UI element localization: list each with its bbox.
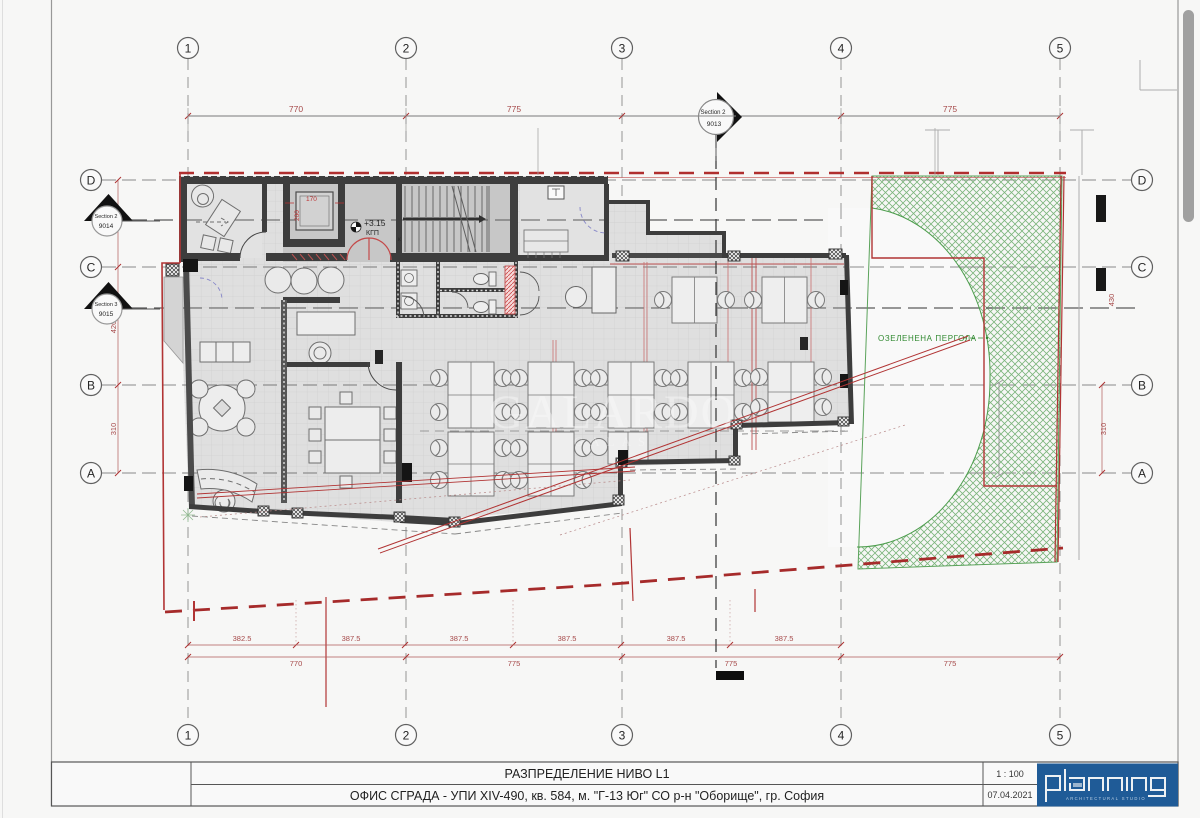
svg-text:ARCHITECTURAL STUDIO: ARCHITECTURAL STUDIO bbox=[1066, 796, 1146, 801]
svg-text:5: 5 bbox=[1057, 729, 1064, 743]
svg-text:Section 2: Section 2 bbox=[95, 214, 118, 220]
svg-text:310: 310 bbox=[109, 423, 118, 436]
svg-text:A: A bbox=[87, 467, 95, 481]
svg-text:РАЗПРЕДЕЛЕНИЕ НИВО L1: РАЗПРЕДЕЛЕНИЕ НИВО L1 bbox=[504, 767, 669, 781]
svg-text:C: C bbox=[87, 261, 96, 275]
svg-text:B: B bbox=[1138, 379, 1146, 393]
svg-text:ОФИС СГРАДА - УПИ XIV-490, кв.: ОФИС СГРАДА - УПИ XIV-490, кв. 584, м. "… bbox=[350, 789, 824, 803]
svg-text:1 : 100: 1 : 100 bbox=[996, 769, 1024, 779]
svg-text:Section 2: Section 2 bbox=[700, 110, 726, 116]
svg-text:4: 4 bbox=[838, 729, 845, 743]
svg-text:5: 5 bbox=[1057, 42, 1064, 56]
svg-text:170: 170 bbox=[306, 196, 317, 203]
svg-text:382.5: 382.5 bbox=[233, 634, 252, 643]
svg-text:770: 770 bbox=[289, 104, 303, 114]
svg-text:775: 775 bbox=[507, 104, 521, 114]
svg-text:КГП: КГП bbox=[366, 230, 379, 237]
svg-text:B: B bbox=[87, 379, 95, 393]
svg-text:2: 2 bbox=[403, 729, 410, 743]
svg-text:775: 775 bbox=[725, 659, 738, 668]
svg-text:9015: 9015 bbox=[99, 311, 114, 318]
svg-text:775: 775 bbox=[944, 659, 957, 668]
svg-text:310: 310 bbox=[1099, 423, 1108, 436]
svg-text:387.5: 387.5 bbox=[342, 634, 361, 643]
svg-text:775: 775 bbox=[508, 659, 521, 668]
svg-text:A: A bbox=[1138, 467, 1146, 481]
svg-text:1: 1 bbox=[185, 42, 192, 56]
svg-text:9014: 9014 bbox=[99, 223, 114, 230]
svg-text:GALAS: GALAS bbox=[574, 434, 652, 449]
svg-text:387.5: 387.5 bbox=[558, 634, 577, 643]
svg-text:3: 3 bbox=[619, 729, 626, 743]
svg-text:9013: 9013 bbox=[707, 121, 722, 128]
svg-text:775: 775 bbox=[943, 104, 957, 114]
svg-text:387.5: 387.5 bbox=[775, 634, 794, 643]
svg-text:3: 3 bbox=[619, 42, 626, 56]
svg-text:1: 1 bbox=[185, 729, 192, 743]
svg-text:430: 430 bbox=[1107, 294, 1116, 307]
svg-text:07.04.2021: 07.04.2021 bbox=[987, 790, 1032, 800]
svg-text:D: D bbox=[87, 174, 96, 188]
svg-text:4: 4 bbox=[838, 42, 845, 56]
svg-text:200: 200 bbox=[294, 210, 301, 221]
svg-text:GALARDO: GALARDO bbox=[489, 386, 738, 439]
svg-text:Section 3: Section 3 bbox=[95, 302, 118, 308]
svg-text:770: 770 bbox=[290, 659, 303, 668]
svg-text:к: к bbox=[398, 237, 401, 243]
svg-text:+3.15: +3.15 bbox=[364, 218, 386, 228]
svg-text:387.5: 387.5 bbox=[450, 634, 469, 643]
svg-text:2: 2 bbox=[403, 42, 410, 56]
svg-text:D: D bbox=[1138, 174, 1147, 188]
svg-text:387.5: 387.5 bbox=[667, 634, 686, 643]
svg-text:C: C bbox=[1138, 261, 1147, 275]
